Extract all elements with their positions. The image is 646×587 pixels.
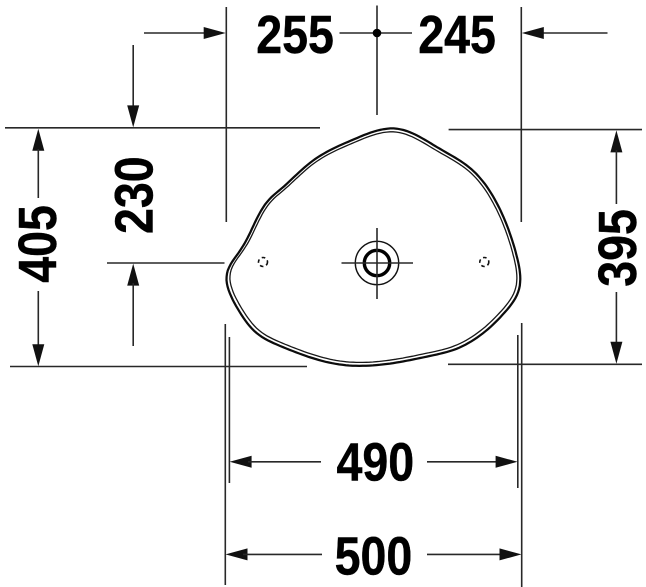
svg-text:405: 405: [8, 205, 68, 283]
svg-text:395: 395: [588, 209, 646, 287]
svg-text:230: 230: [105, 156, 165, 234]
svg-text:490: 490: [336, 432, 414, 492]
svg-text:500: 500: [335, 527, 413, 587]
svg-text:255: 255: [256, 5, 334, 65]
svg-text:245: 245: [418, 5, 496, 65]
